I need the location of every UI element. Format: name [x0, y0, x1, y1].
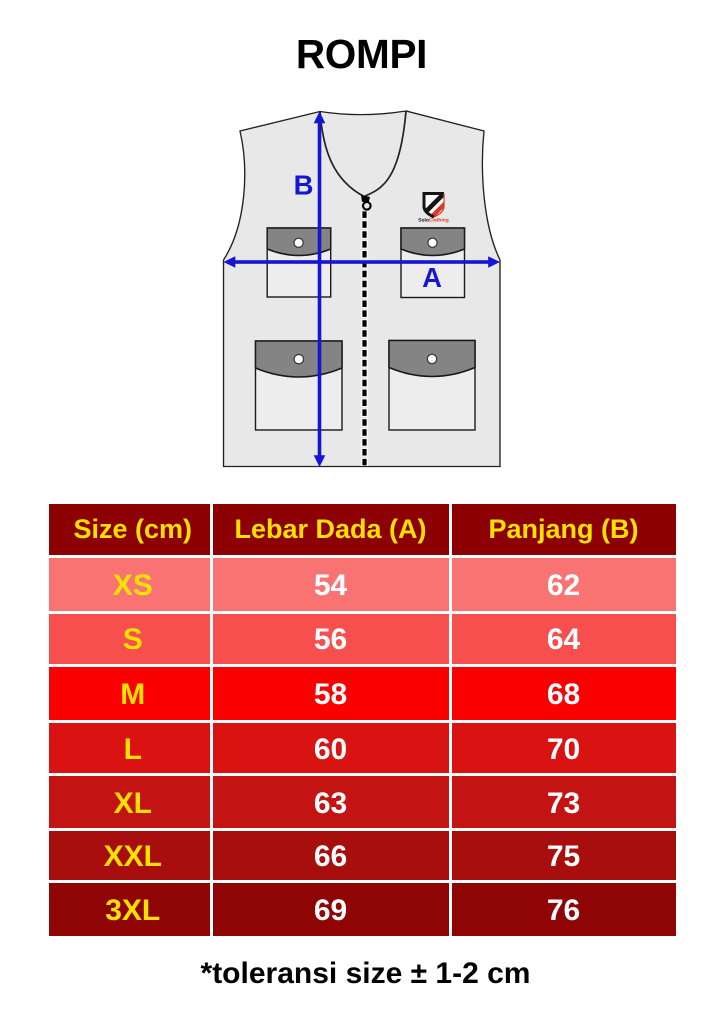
svg-text:B: B [294, 170, 314, 201]
svg-text:SoloClothing: SoloClothing [418, 218, 448, 224]
svg-text:A: A [422, 262, 442, 293]
